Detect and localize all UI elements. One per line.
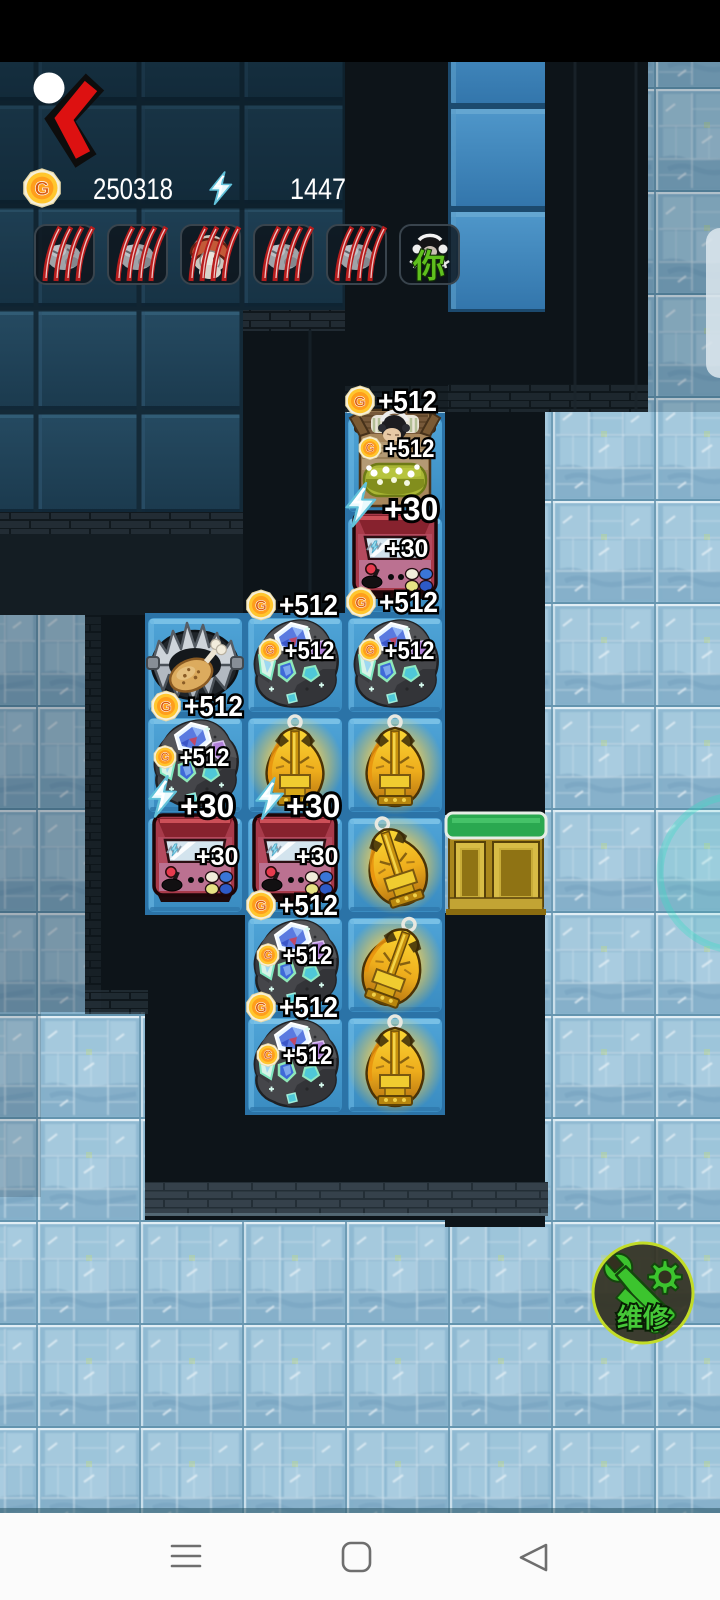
svg-text:+512: +512 bbox=[379, 587, 438, 619]
svg-text:+512: +512 bbox=[279, 992, 338, 1024]
svg-text:+512: +512 bbox=[180, 744, 230, 772]
svg-text:+512: +512 bbox=[378, 386, 437, 418]
svg-text:+512: +512 bbox=[385, 435, 435, 463]
svg-text:250318: 250318 bbox=[93, 173, 173, 206]
svg-text:+30: +30 bbox=[386, 535, 428, 563]
svg-text:+30: +30 bbox=[196, 843, 238, 871]
svg-text:+512: +512 bbox=[283, 1042, 333, 1070]
svg-text:+30: +30 bbox=[180, 788, 234, 824]
svg-text:维修: 维修 bbox=[617, 1303, 670, 1333]
svg-text:+512: +512 bbox=[279, 890, 338, 922]
svg-text:+30: +30 bbox=[296, 843, 338, 871]
svg-text:+512: +512 bbox=[285, 637, 335, 665]
svg-text:1447: 1447 bbox=[290, 173, 346, 206]
svg-text:你: 你 bbox=[412, 248, 445, 284]
svg-text:+512: +512 bbox=[385, 637, 435, 665]
svg-text:+30: +30 bbox=[384, 491, 438, 527]
svg-text:+512: +512 bbox=[283, 942, 333, 970]
svg-text:+512: +512 bbox=[184, 691, 243, 723]
svg-text:+30: +30 bbox=[286, 788, 340, 824]
svg-text:+512: +512 bbox=[279, 590, 338, 622]
